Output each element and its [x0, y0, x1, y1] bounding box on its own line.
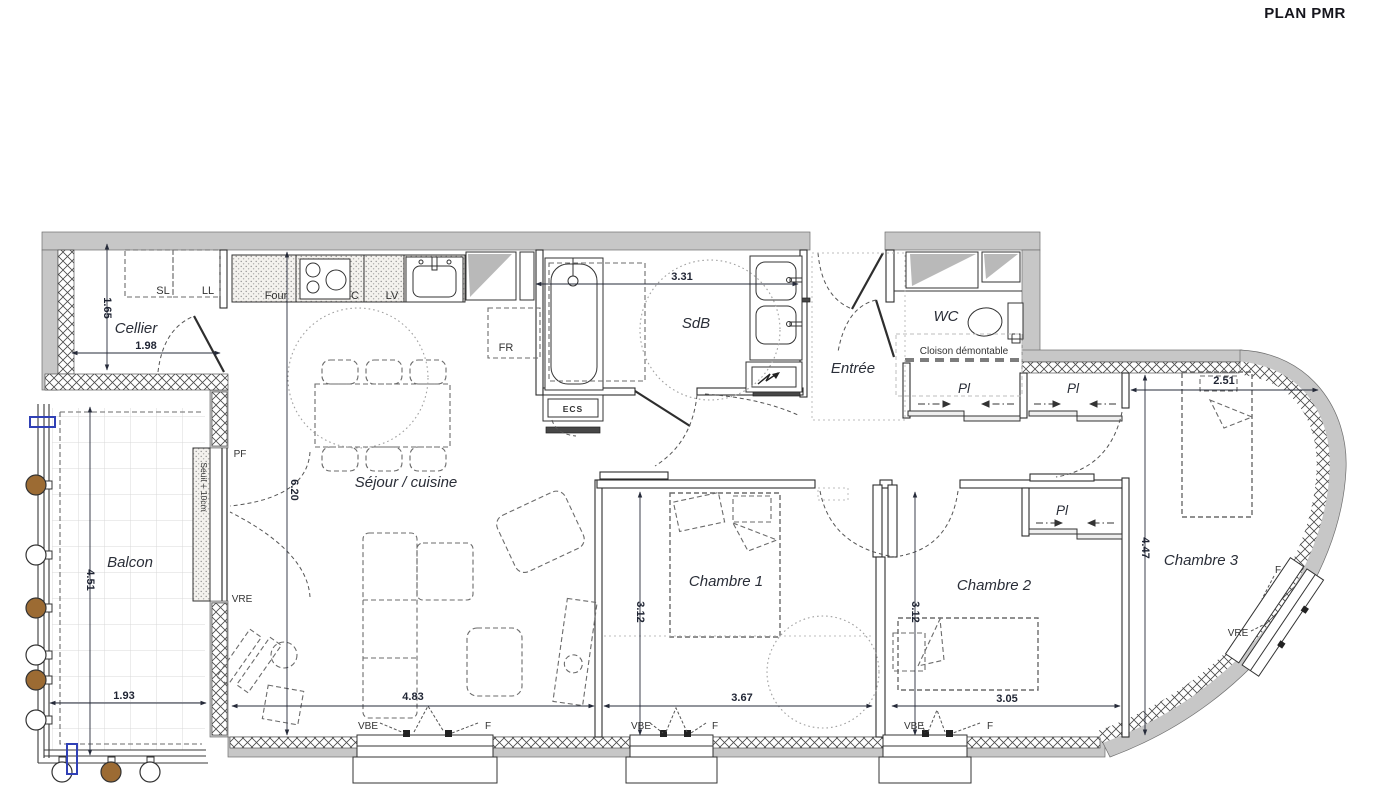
armchair: [493, 488, 587, 576]
opening-vbe-sejour: VBE: [358, 721, 378, 732]
dining-set: [315, 360, 450, 471]
opening-pf: PF: [234, 449, 247, 460]
toilet: [966, 303, 1023, 343]
bathtub: [545, 258, 603, 390]
balcony-door-swing: [230, 452, 310, 597]
window-sejour: [353, 730, 497, 783]
label-ll: LL: [202, 285, 214, 297]
label-fr: FR: [499, 342, 514, 354]
room-sejour: Séjour / cuisine: [355, 474, 458, 491]
opening-vre-ch3: VRE: [1228, 628, 1249, 639]
room-entree: Entrée: [831, 360, 875, 377]
dim-sdb-w: 3.31: [671, 271, 692, 283]
room-sdb: SdB: [682, 315, 710, 332]
balcony-door-pf: [193, 448, 227, 601]
window-chambre1: [626, 730, 717, 783]
wc-door: [838, 300, 894, 357]
tv-unit: [553, 598, 597, 705]
closet-a: [908, 404, 1020, 421]
label-sl: SL: [156, 285, 169, 297]
exterior-walls: [42, 232, 1346, 757]
room-chambre3: Chambre 3: [1164, 552, 1239, 569]
wc-room: [894, 252, 1023, 396]
closet-c: [1029, 523, 1122, 539]
dim-cellier-h: 1.65: [101, 297, 113, 318]
closet-b: [1029, 404, 1122, 421]
label-lv: LV: [386, 290, 399, 302]
opening-vbe-ch2: VBE: [904, 721, 924, 732]
closets: [908, 404, 1122, 539]
closet-a-label: Pl: [958, 381, 971, 396]
closet-c-label: Pl: [1056, 503, 1069, 518]
label-ecs: ECS: [563, 404, 583, 414]
floor-plan-canvas: Four C LV FR SL LL: [0, 0, 1386, 800]
sdb-door: [635, 391, 798, 466]
balcony-drain-top: [30, 417, 55, 427]
dim-cellier-w: 1.98: [135, 340, 156, 352]
kitchen-duct: [466, 252, 534, 300]
room-wc: WC: [934, 308, 959, 325]
chambre2-door: [900, 491, 958, 556]
desk-corner: [217, 629, 304, 725]
room-chambre2: Chambre 2: [957, 577, 1032, 594]
dim-ch2-h: 3.12: [909, 601, 921, 622]
room-cellier: Cellier: [115, 320, 159, 337]
chambre1-door: [820, 491, 895, 557]
wc-windows: [894, 252, 1022, 291]
opening-f-ch1: F: [712, 721, 718, 732]
chambre3-door: [1056, 412, 1122, 477]
opening-f-sejour: F: [485, 721, 491, 732]
dim-ch3-w: 2.51: [1213, 375, 1234, 387]
dim-ch3-h: 4.47: [1139, 537, 1151, 558]
coffee-table: [467, 628, 522, 696]
bed-chambre3: [1182, 372, 1252, 517]
opening-f-ch3: F: [1275, 565, 1281, 576]
note-cloison: Cloison démontable: [920, 346, 1009, 357]
dim-sejour-h: 6.20: [288, 479, 300, 500]
opening-vre-west: VRE: [232, 594, 253, 605]
wheelchair-circle-ch1: [767, 616, 879, 728]
opening-f-ch2: F: [987, 721, 993, 732]
double-washbasin: [750, 256, 802, 360]
cellier-door: [158, 316, 224, 372]
kitchen: Four C LV FR: [232, 252, 540, 358]
label-cooktop: C: [351, 290, 359, 302]
electrical-panel: [746, 362, 802, 392]
room-balcon: Balcon: [107, 554, 153, 571]
balcony: [26, 404, 208, 782]
closet-b-label: Pl: [1067, 381, 1080, 396]
water-heater: [543, 395, 603, 433]
fridge: [488, 308, 540, 358]
dim-balcon-w: 1.93: [113, 690, 134, 702]
room-chambre1: Chambre 1: [689, 573, 763, 590]
kitchen-sink: [406, 257, 463, 302]
note-seuil: Seuil + 10cm: [199, 462, 209, 511]
dim-ch2-w: 3.05: [996, 693, 1017, 705]
dim-ch1-h: 3.12: [634, 601, 646, 622]
cellier-room: SL LL: [125, 250, 220, 297]
dim-balcon-h: 4.51: [84, 569, 96, 590]
bed-chambre1: [670, 493, 780, 637]
cooktop: [300, 259, 350, 299]
window-chambre2: [879, 730, 971, 783]
label-four: Four: [265, 290, 288, 302]
opening-vbe-ch1: VBE: [631, 721, 651, 732]
dim-ch1-w: 3.67: [731, 692, 752, 704]
plan-title: PLAN PMR: [1264, 5, 1346, 22]
dim-sejour-w: 4.83: [402, 691, 423, 703]
